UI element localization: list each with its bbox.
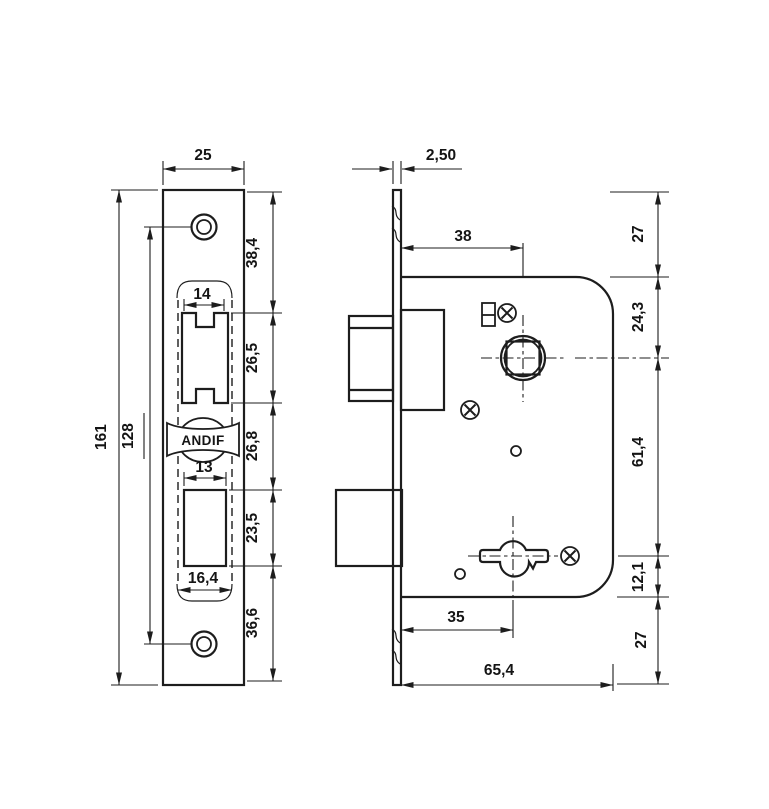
deadbolt-cutout	[184, 490, 226, 566]
dim-label-plate-height: 161	[93, 424, 110, 450]
latch-cutout	[182, 313, 228, 403]
brand-text: ANDIF	[181, 433, 224, 448]
screw-hole-bottom	[192, 632, 217, 657]
faceplate-strip	[393, 190, 401, 685]
dim-label-case-width: 16,4	[188, 570, 219, 587]
dim-label-spindle-to-keyhole: 61,4	[630, 437, 647, 468]
dim-label-latch-width: 14	[193, 286, 211, 303]
dim-label-deadbolt-height: 23,5	[244, 513, 261, 544]
screw-hole-top	[192, 215, 217, 240]
dim-label-bottom-margin: 27	[633, 631, 650, 648]
dim-label-case-depth: 65,4	[484, 662, 515, 679]
dim-plate-width: 25	[163, 147, 244, 185]
dim-faceplate-thickness: 2,50	[352, 147, 462, 184]
dim-keyhole-backset: 35	[401, 600, 513, 638]
dim-label-keyhole-to-case-bottom: 12,1	[630, 562, 647, 593]
dim-case-width: 16,4	[177, 570, 232, 601]
dim-label-deadbolt-width: 13	[195, 459, 213, 476]
latch-bolt	[349, 316, 393, 401]
side-dimension-chain: 27 24,3 61,4 12,1 27	[575, 192, 669, 684]
dim-screw-spacing: 128	[120, 227, 150, 644]
dim-spindle-backset: 38	[401, 228, 523, 277]
dim-label-deadbolt-to-bottom: 36,6	[244, 608, 261, 639]
lock-technical-drawing-page: 25 161 128 14 ANDIF	[0, 0, 769, 809]
pin-hole-upper	[511, 446, 521, 456]
stop-plate	[482, 303, 495, 326]
dim-case-depth: 65,4	[401, 662, 613, 691]
keyhole	[468, 516, 558, 596]
dim-label-plate-width: 25	[194, 147, 212, 164]
dim-label-keyhole-backset: 35	[447, 609, 465, 626]
screw-bottom	[561, 547, 579, 565]
dim-deadbolt-width: 13	[184, 459, 226, 486]
dim-label-top-to-latch: 38,4	[244, 238, 261, 269]
dim-label-latch-to-deadbolt: 26,8	[244, 431, 261, 462]
lock-case-outline	[401, 277, 613, 597]
dim-label-screw-spacing: 128	[120, 423, 137, 449]
spindle-hub	[481, 315, 567, 402]
dim-latch-width: 14	[184, 286, 224, 311]
screw-top	[498, 304, 516, 322]
dim-label-spindle-backset: 38	[454, 228, 472, 245]
lock-technical-drawing: 25 161 128 14 ANDIF	[0, 0, 769, 809]
latch-housing	[401, 310, 444, 410]
dim-label-faceplate-thickness: 2,50	[426, 147, 456, 164]
dim-label-case-top-to-spindle: 24,3	[630, 302, 647, 333]
side-view: 2,50 38	[336, 147, 669, 691]
dim-label-latch-height: 26,5	[244, 343, 261, 374]
pin-hole-lower	[455, 569, 465, 579]
front-view: 25 161 128 14 ANDIF	[93, 147, 282, 685]
dim-label-top-margin: 27	[630, 225, 647, 242]
screw-middle	[461, 401, 479, 419]
